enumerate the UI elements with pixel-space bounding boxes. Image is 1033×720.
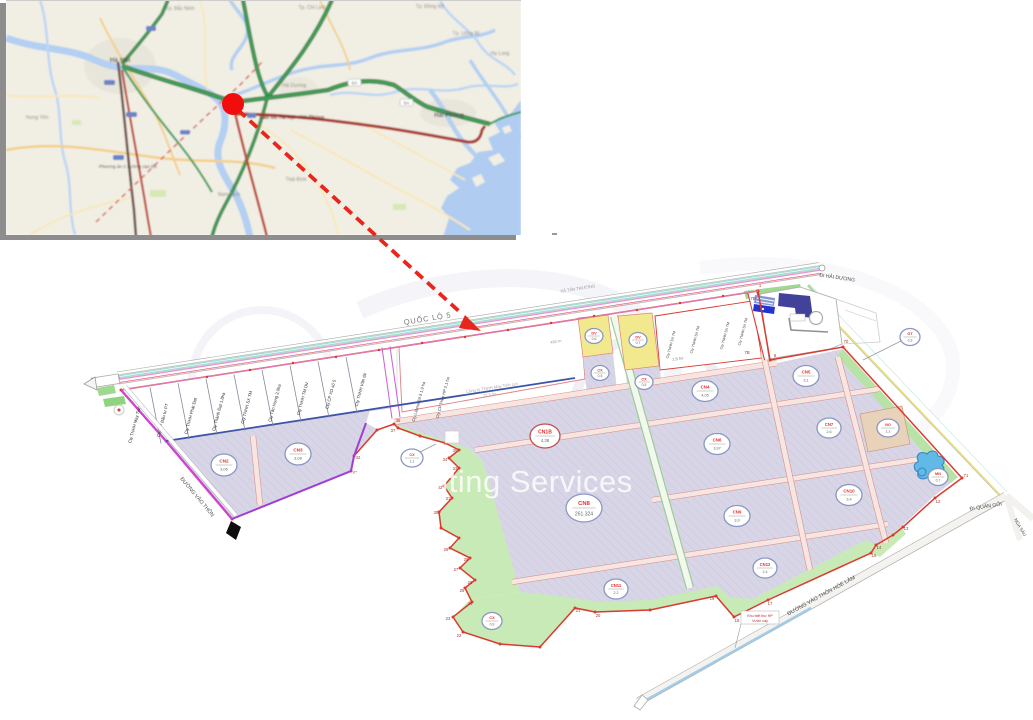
svg-text:28: 28 [464,557,469,562]
svg-text:Hà Nội: Hà Nội [110,57,131,64]
svg-text:CN10: CN10 [843,489,855,494]
svg-text:0,7: 0,7 [636,341,641,345]
svg-text:CX: CX [489,616,495,620]
svg-text:Tp. Chí Linh: Tp. Chí Linh [298,5,325,11]
svg-text:3,9: 3,9 [734,518,739,522]
svg-text:3,97: 3,97 [713,446,720,450]
svg-text:CN6: CN6 [713,438,722,443]
svg-text:4,38: 4,38 [541,438,550,443]
svg-text:Thái Bình: Thái Bình [285,177,307,183]
svg-text:70: 70 [844,339,849,344]
svg-text:30: 30 [434,510,439,515]
svg-text:CX: CX [641,377,647,381]
svg-text:36: 36 [396,418,401,423]
svg-text:3,08: 3,08 [294,456,302,461]
svg-text:26: 26 [468,580,473,585]
svg-text:CN5: CN5 [802,370,811,375]
svg-text:42: 42 [356,455,361,460]
svg-text:DV: DV [591,331,597,335]
svg-text:0,5: 0,5 [642,383,647,387]
svg-text:7B: 7B [750,296,755,301]
svg-text:19: 19 [710,596,715,601]
svg-text:23: 23 [446,616,451,621]
svg-text:37: 37 [391,428,396,433]
svg-text:0,5: 0,5 [598,374,603,378]
svg-text:CN4: CN4 [701,385,710,390]
svg-text:1,1: 1,1 [886,430,891,434]
svg-text:CN3: CN3 [293,448,303,453]
svg-text:22: 22 [457,633,462,638]
svg-text:12: 12 [936,499,941,504]
svg-text:CN12: CN12 [760,562,771,567]
svg-text:14: 14 [877,545,882,550]
svg-text:3,06: 3,06 [220,467,228,472]
svg-text:CN11: CN11 [611,583,622,588]
svg-text:Phương án 2 đường cao tốc: Phương án 2 đường cao tốc [99,164,158,169]
svg-text:Vườn cây: Vườn cây [752,619,768,623]
svg-text:20: 20 [596,613,601,618]
svg-text:4,05: 4,05 [701,393,708,397]
svg-text:35: 35 [453,448,458,453]
svg-text:CX: CX [597,368,603,372]
svg-text:2,6: 2,6 [827,430,832,434]
svg-text:18: 18 [735,618,740,623]
svg-text:27: 27 [454,567,459,572]
svg-text:CN2: CN2 [219,459,229,464]
svg-text:MN: MN [935,472,941,476]
svg-text:261.324: 261.324 [575,511,593,517]
svg-text:3,4: 3,4 [846,497,851,501]
svg-text:22,5 ha: 22,5 ha [483,391,498,398]
svg-text:Nam Định: Nam Định [218,192,240,198]
svg-text:Tp. Đông Mỹ: Tp. Đông Mỹ [416,4,445,10]
svg-text:2,2: 2,2 [614,591,619,595]
svg-text:Cty TNHH May Tinh: Cty TNHH May Tinh [127,405,142,444]
svg-text:Hạ Long: Hạ Long [491,51,510,57]
svg-text:21: 21 [576,608,581,613]
svg-text:71: 71 [964,473,969,478]
svg-text:24: 24 [468,601,473,606]
svg-text:15: 15 [872,553,877,558]
svg-text:25: 25 [460,588,465,593]
svg-text:GT: GT [907,332,913,336]
svg-text:29: 29 [444,547,449,552]
svg-text:Hải Phòng: Hải Phòng [434,113,464,119]
svg-text:5A: 5A [404,101,411,107]
svg-text:3,1: 3,1 [803,378,808,382]
svg-text:5A: 5A [352,81,359,87]
svg-text:Tp. Bắc Ninh: Tp. Bắc Ninh [166,5,195,12]
svg-text:Hải Dương: Hải Dương [282,83,307,89]
svg-text:7B: 7B [744,350,749,355]
svg-text:Tp. Uông Bí: Tp. Uông Bí [453,31,480,37]
svg-text:13: 13 [904,526,909,531]
svg-text:CN9: CN9 [733,510,742,515]
svg-text:17: 17 [768,601,773,606]
svg-text:34: 34 [443,457,448,462]
svg-text:0,9: 0,9 [490,622,495,626]
svg-text:CN7: CN7 [825,422,834,427]
svg-text:DV: DV [635,335,641,339]
svg-text:0,6: 0,6 [592,337,597,341]
svg-text:CX: CX [409,453,415,457]
svg-text:NO: NO [885,423,891,427]
svg-text:Consulting Services: Consulting Services [349,464,632,499]
svg-text:Cao tốc Hà Nội - Hải Phòng: Cao tốc Hà Nội - Hải Phòng [260,114,325,121]
svg-text:CN1B: CN1B [538,429,552,435]
svg-text:0,7: 0,7 [936,478,941,482]
svg-text:Hưng Yên: Hưng Yên [26,115,49,121]
svg-text:Khu biệt thự HP: Khu biệt thự HP [747,614,773,618]
svg-text:CN8: CN8 [578,501,590,507]
svg-text:0,3: 0,3 [908,338,913,342]
svg-text:2,4: 2,4 [763,570,768,574]
